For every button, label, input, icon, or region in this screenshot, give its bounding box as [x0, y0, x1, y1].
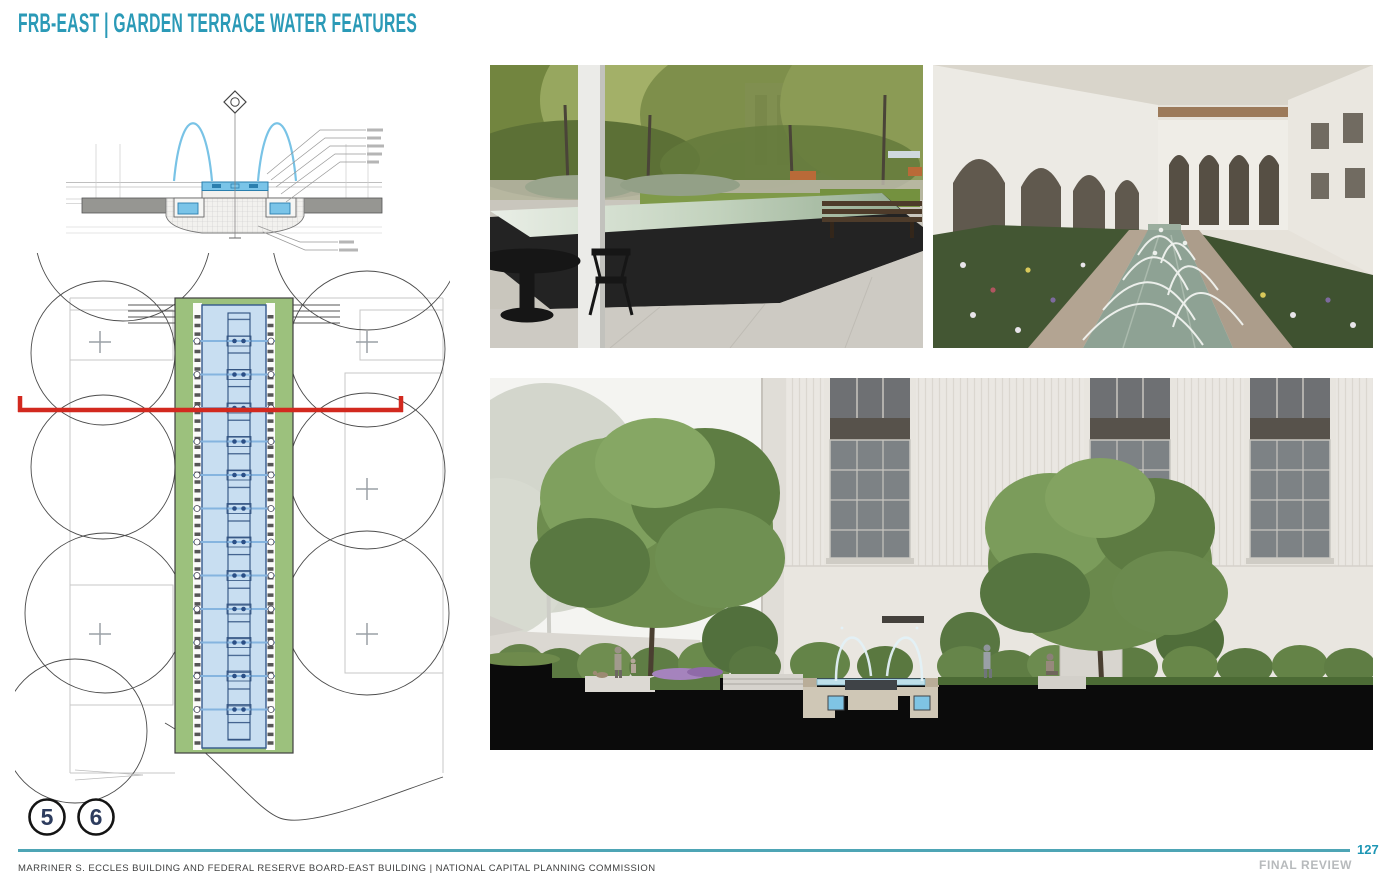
- photo-simple-rectangular-basin: Simple Rectangular Basin: [490, 65, 923, 348]
- page-title: FRB-EAST | GARDEN TERRACE WATER FEATURES: [18, 8, 417, 39]
- bench-section: [723, 674, 803, 690]
- annotation-leader-lines: [258, 130, 366, 250]
- side-trough-water: [270, 203, 290, 214]
- water-jets-photo-graphic: [933, 65, 1373, 348]
- section-rendering-graphic: [490, 378, 1373, 750]
- base-vent: [882, 616, 924, 623]
- plan-water-channel: [175, 298, 293, 753]
- footer-rule: [18, 849, 1350, 852]
- review-status-label: FINAL REVIEW: [1259, 858, 1352, 872]
- flower-mound: [650, 667, 723, 690]
- plan-misc-lines: [75, 770, 143, 780]
- callout-number: 6: [90, 804, 103, 830]
- callout-number: 5: [41, 804, 54, 830]
- plan-callout-6: 6: [79, 800, 114, 835]
- garden-terrace-plan-drawing: 5 6: [15, 253, 450, 845]
- window-bay: [1244, 378, 1336, 568]
- document-page: FRB-EAST | GARDEN TERRACE WATER FEATURES: [0, 0, 1397, 878]
- fountain-section-detail-drawing: [62, 86, 386, 254]
- photo-series-of-water-jets: Series of Water Jets: [933, 65, 1373, 348]
- basin-photo-graphic: [490, 65, 923, 348]
- plan-callout-5: 5: [30, 800, 65, 835]
- footer-project-title: MARRINER S. ECCLES BUILDING AND FEDERAL …: [18, 863, 656, 874]
- page-number: 127: [1357, 842, 1379, 857]
- side-trough-water: [178, 203, 198, 214]
- paving-slab: [585, 676, 655, 692]
- window-bay: [824, 378, 916, 568]
- section-rendering: FRB-EAST Garden Terrace Water Feature Se…: [490, 378, 1373, 750]
- lawn-strip: [938, 677, 1373, 685]
